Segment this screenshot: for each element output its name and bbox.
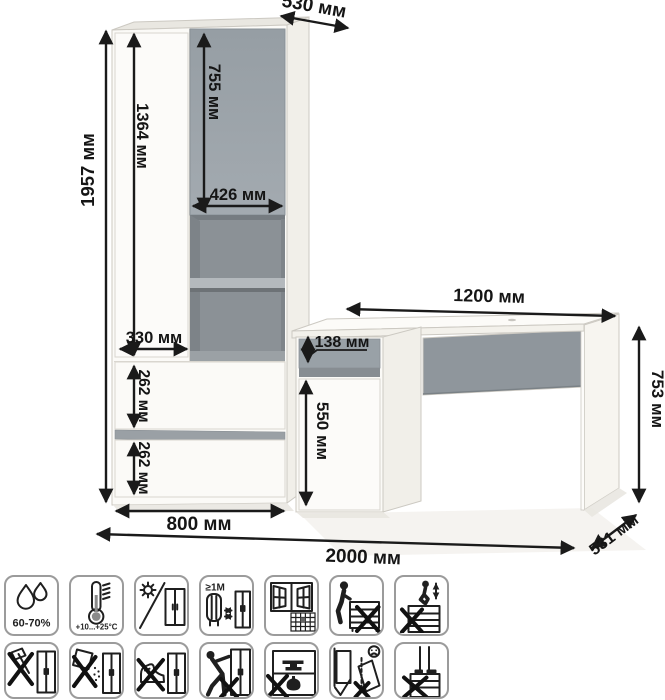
no-overloading-icon [264, 642, 319, 699]
no-standing-icon [394, 642, 449, 699]
no-impact-icon [69, 642, 124, 699]
dim-label-1200: 1200 мм [453, 285, 525, 307]
dim-label-800: 800 мм [166, 514, 231, 535]
dim-label-262b: 262 мм [135, 441, 152, 494]
dimension-1200: 1200 мм [347, 285, 615, 316]
drawer-divider [115, 430, 285, 441]
product-dimension-sheet: { "diagram": { "type": "furniture-dimens… [0, 0, 665, 700]
no-pushing-icon [199, 642, 254, 699]
min-distance: ≥1M [206, 583, 225, 594]
dim-label-330: 330 мм [126, 329, 183, 347]
care-icons-row-2 [4, 642, 449, 699]
heat-distance-icon: ≥1M [199, 575, 254, 636]
dimension-262-lower: 262 мм [134, 441, 152, 494]
dimension-262-upper: 262 мм [134, 366, 152, 427]
dim-label-262a: 262 мм [135, 369, 152, 422]
furniture-diagram: 530 мм 1957 мм 1364 мм 755 мм 426 мм 330… [0, 0, 665, 572]
desk-right-leg [584, 314, 619, 510]
no-sharp-tools-icon [4, 642, 59, 699]
temperature-icon: +10...+25°C [69, 575, 124, 636]
humidity-icon: 60-70% [4, 575, 59, 636]
dimension-1957: 1957 мм [77, 31, 106, 502]
dim-label-426: 426 мм [210, 186, 267, 204]
no-kicking-icon [134, 642, 189, 699]
dim-label-550: 550 мм [313, 402, 332, 460]
dimension-330: 330 мм [120, 329, 187, 349]
desk-drawer-divider [299, 368, 380, 377]
cable-grommet [508, 319, 516, 322]
desk-pedestal-side [383, 327, 421, 512]
care-icons-row-1: 60-70% +10...+25°C ≥1M [4, 575, 449, 636]
dim-label-1364: 1364 мм [133, 103, 151, 169]
wardrobe-open-shelves [190, 215, 285, 361]
dim-label-138: 138 мм [315, 334, 370, 351]
wardrobe-left-door [115, 33, 188, 357]
dim-label-755: 755 мм [205, 64, 223, 121]
desk-back-panel [423, 330, 582, 395]
no-jumping-icon [394, 575, 449, 636]
no-sitting-icon [329, 575, 384, 636]
shelf [190, 278, 285, 288]
ventilation-icon [264, 575, 319, 636]
anti-tip-anchor-icon [329, 642, 384, 699]
dim-label-1957: 1957 мм [77, 133, 98, 207]
no-direct-sunlight-icon [134, 575, 189, 636]
dim-label-753: 753 мм [648, 370, 665, 428]
humidity-range: 60-70% [13, 618, 51, 630]
dimension-753: 753 мм [639, 327, 665, 502]
dim-label-2000: 2000 мм [325, 546, 401, 570]
desk-door [299, 379, 380, 510]
temperature-range: +10...+25°C [76, 623, 118, 632]
dimension-800: 800 мм [116, 511, 284, 535]
